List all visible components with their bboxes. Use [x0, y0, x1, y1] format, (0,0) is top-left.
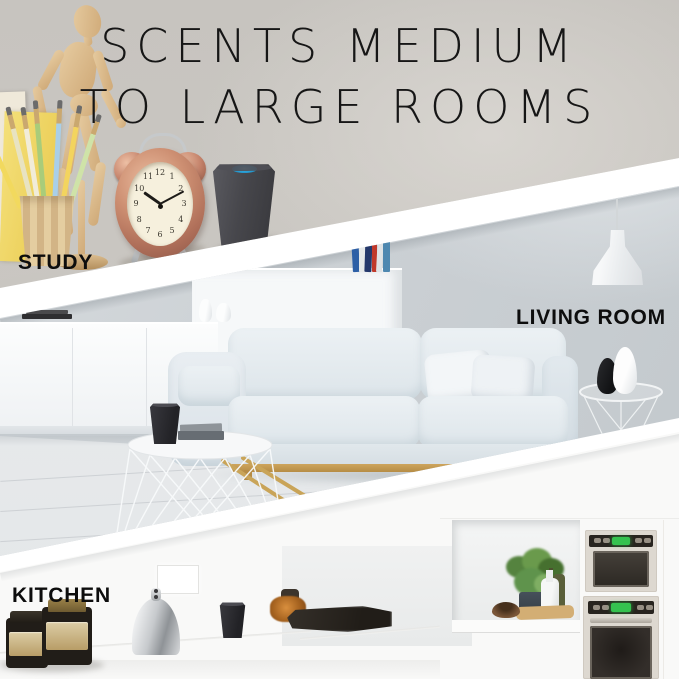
magazine — [383, 237, 390, 272]
upper-oven-door — [593, 551, 649, 587]
sofa-back-cushion — [228, 328, 422, 400]
oven-knob — [603, 538, 610, 543]
wooden-bowl — [492, 602, 520, 618]
oven-knob — [602, 605, 609, 610]
cloche-knob — [151, 588, 161, 601]
niche-shelf — [452, 620, 580, 633]
upper-oven-display — [612, 537, 630, 545]
small-vase — [216, 303, 231, 322]
clock-numeral: 2 — [175, 184, 187, 193]
clock-numeral: 11 — [142, 172, 154, 181]
mannequin-shin — [88, 162, 107, 227]
chrome-cloche — [132, 598, 180, 655]
aroma-diffuser-living — [149, 403, 181, 444]
dark-roasting-pan — [287, 606, 392, 632]
living-room-label: LIVING ROOM — [516, 306, 666, 330]
cabinet-seam — [440, 518, 679, 519]
drawer-seam — [146, 328, 147, 432]
oven-knob — [644, 538, 651, 543]
drawer-seam — [72, 328, 73, 432]
clock-numeral: 6 — [154, 230, 166, 239]
books-on-table — [178, 431, 224, 440]
oven-knob — [593, 605, 600, 610]
small-vase — [199, 299, 212, 322]
oven-handle — [590, 618, 652, 623]
sofa-seat-cushion — [418, 396, 568, 448]
oven-knob — [637, 605, 644, 610]
lower-oven-door — [590, 626, 652, 679]
oven-knob — [594, 538, 601, 543]
canister-label — [9, 632, 45, 656]
clock-numeral: 8 — [133, 215, 145, 224]
clock-numeral: 5 — [166, 226, 178, 235]
oven-knob — [646, 605, 653, 610]
white-vase — [613, 347, 637, 394]
clock-center-dot — [158, 204, 163, 209]
clock-numeral: 12 — [154, 168, 166, 177]
clock-numeral: 10 — [133, 184, 145, 193]
cabinet-seam — [663, 520, 664, 679]
books-on-sideboard — [22, 314, 72, 319]
study-label: STUDY — [18, 251, 93, 275]
mannequin-stand-pole — [78, 180, 85, 260]
page-title-line2: TO LARGE ROOMS — [0, 77, 679, 138]
page-title: SCENTS MEDIUM TO LARGE ROOMS — [0, 16, 679, 138]
pendant-cord — [616, 188, 618, 232]
canister-label — [46, 622, 88, 650]
pendant-lamp — [592, 230, 643, 285]
clock-numeral: 4 — [175, 215, 187, 224]
kitchen-window — [157, 565, 199, 594]
clock-numeral: 7 — [142, 226, 154, 235]
clock-numeral: 1 — [166, 172, 178, 181]
oven-knob — [635, 538, 642, 543]
lower-oven-display — [611, 603, 631, 612]
clock-hour-hand — [143, 191, 161, 205]
clock-numeral: 9 — [130, 199, 142, 208]
kitchen-label: KITCHEN — [12, 584, 111, 608]
aroma-diffuser-kitchen — [219, 602, 246, 638]
clock-numeral: 3 — [178, 199, 190, 208]
cutting-board — [516, 605, 574, 620]
page-title-line1: SCENTS MEDIUM — [0, 16, 679, 77]
canister-cap — [10, 611, 44, 623]
books-on-sideboard — [26, 310, 68, 314]
diffuser-blue-light — [232, 165, 257, 173]
white-bottle-neck — [546, 570, 553, 582]
aroma-diffuser-study — [211, 163, 277, 248]
